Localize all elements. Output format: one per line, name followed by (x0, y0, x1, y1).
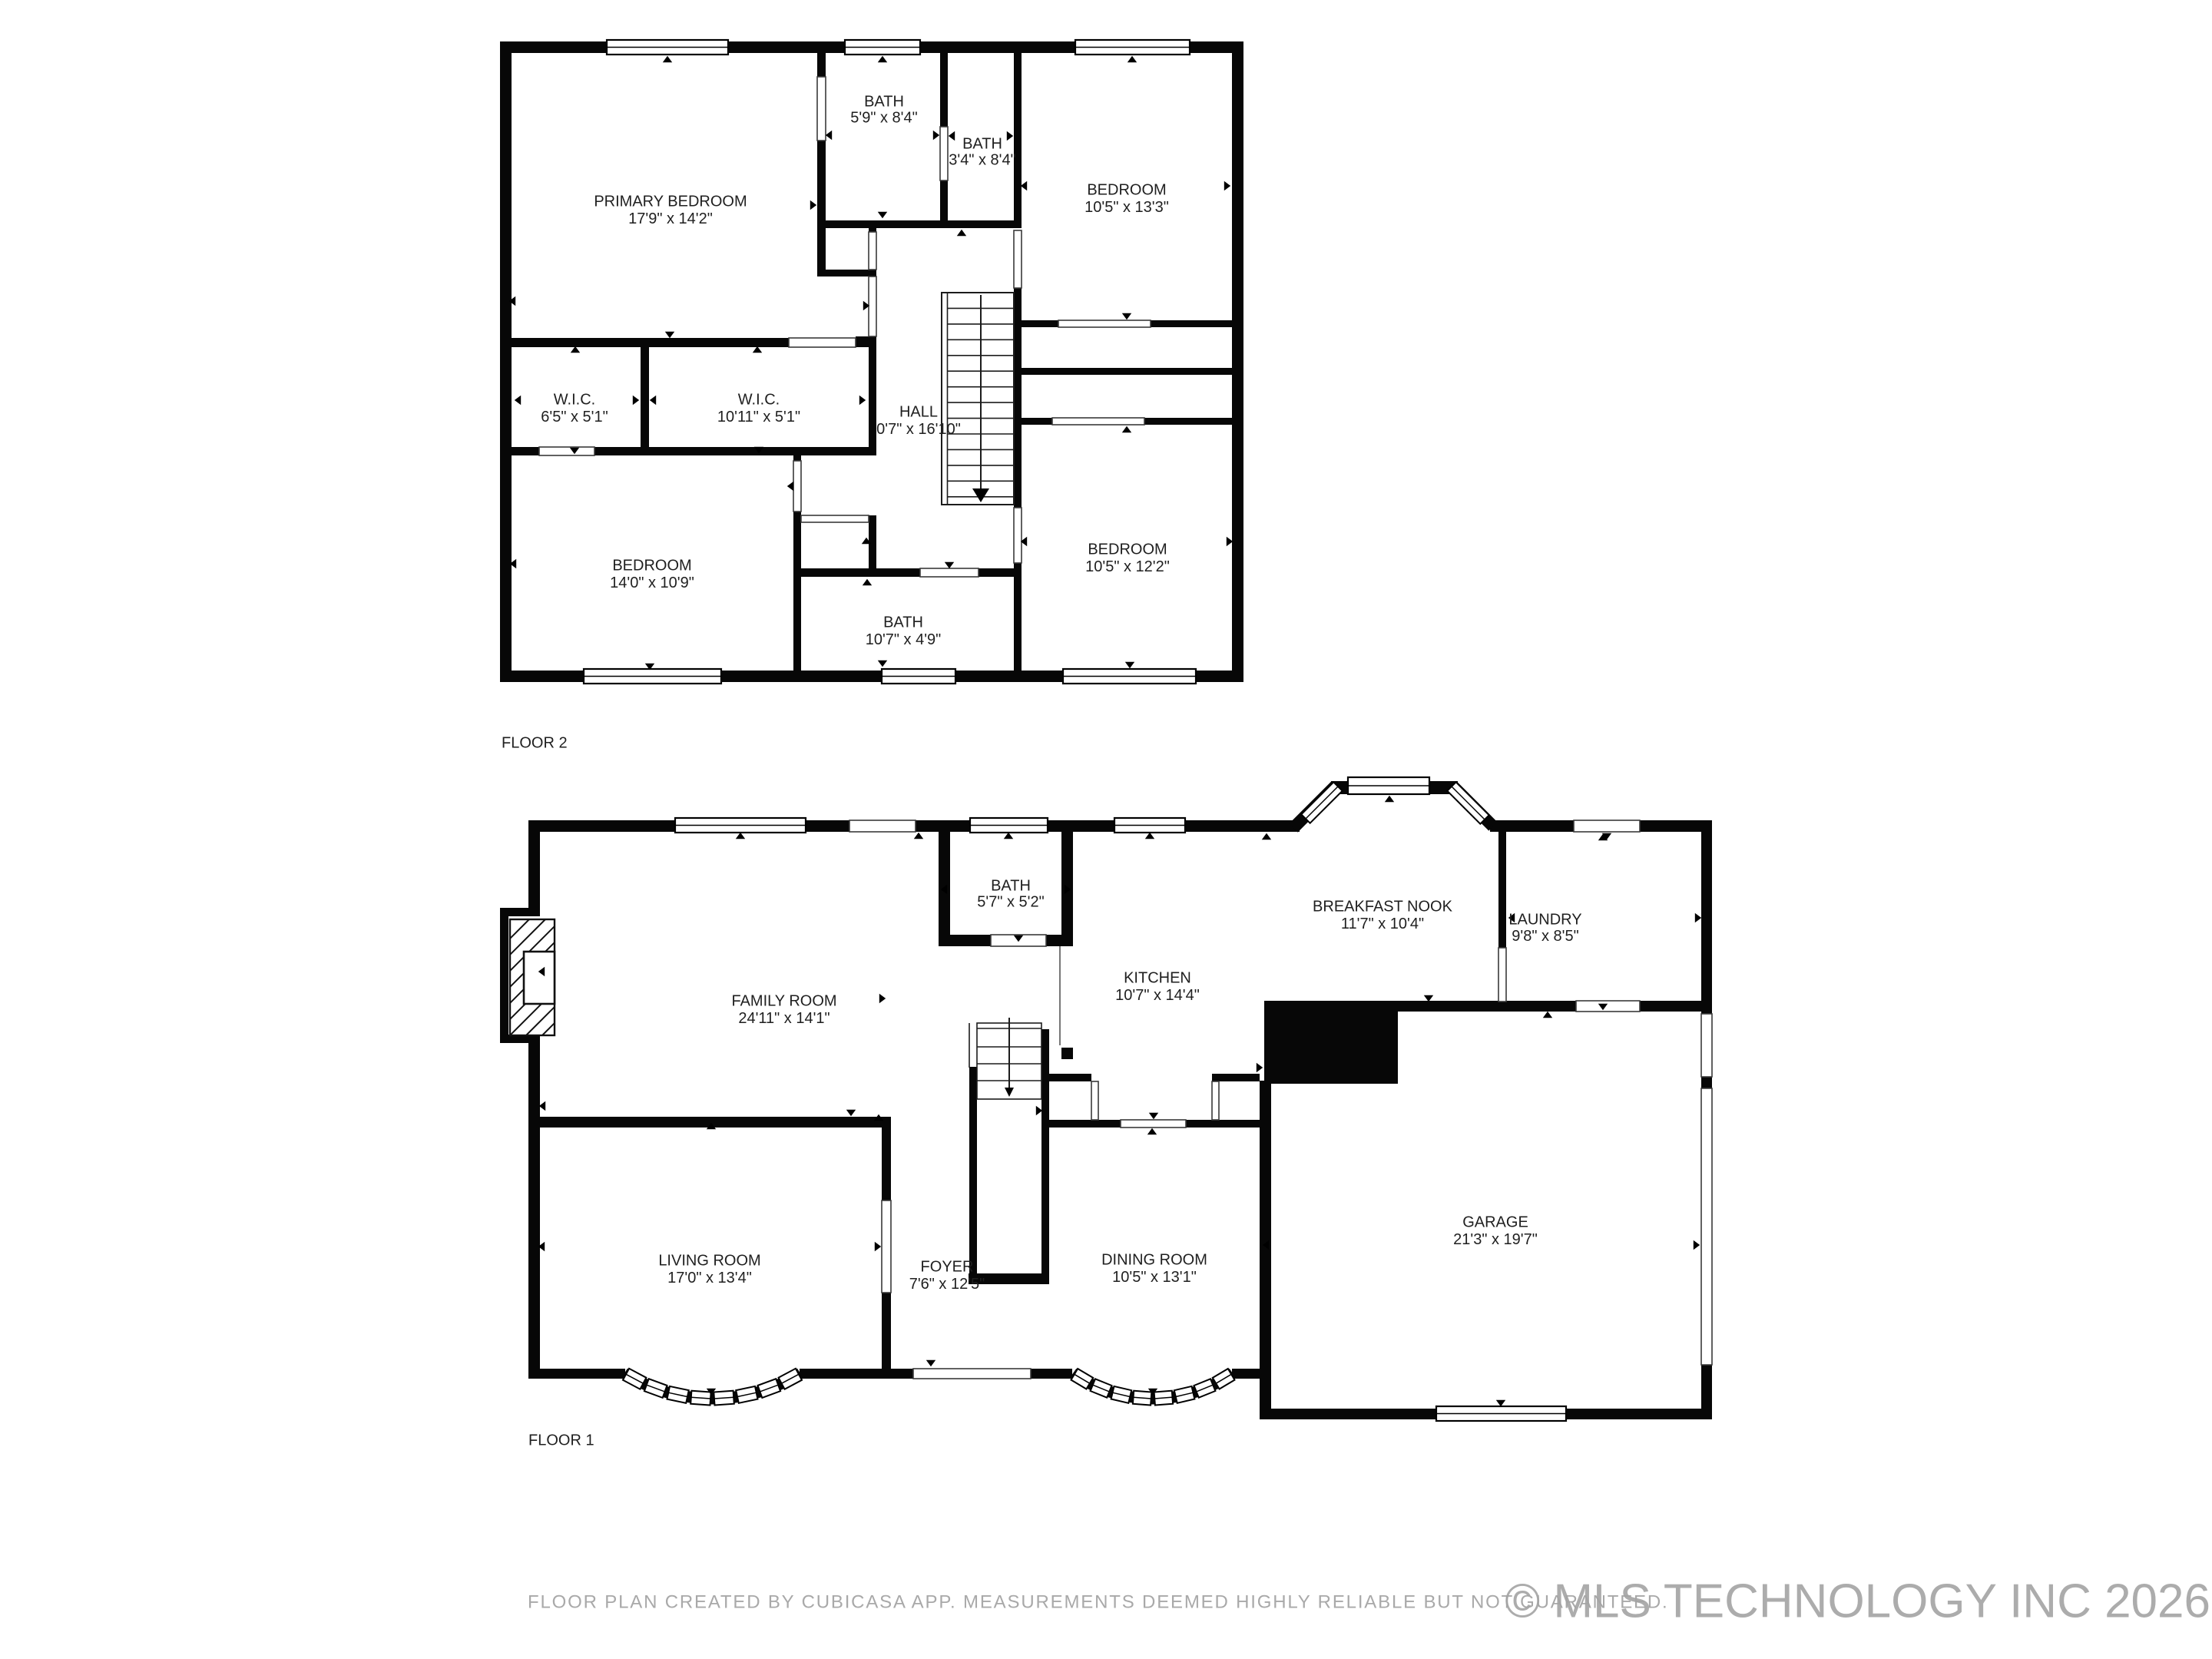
svg-text:BEDROOM: BEDROOM (1088, 541, 1167, 558)
svg-text:10'7" x 14'4": 10'7" x 14'4" (1115, 987, 1200, 1004)
svg-text:3'4" x 8'4": 3'4" x 8'4" (949, 151, 1015, 168)
svg-text:DINING ROOM: DINING ROOM (1101, 1251, 1207, 1268)
svg-text:10'11" x 5'1": 10'11" x 5'1" (717, 409, 800, 426)
svg-text:KITCHEN: KITCHEN (1124, 969, 1191, 986)
svg-text:21'3" x 19'7": 21'3" x 19'7" (1453, 1231, 1538, 1248)
svg-text:BATH: BATH (991, 877, 1031, 894)
svg-text:BREAKFAST NOOK: BREAKFAST NOOK (1313, 898, 1453, 915)
svg-text:PRIMARY BEDROOM: PRIMARY BEDROOM (594, 193, 747, 210)
svg-text:5'7" x 5'2": 5'7" x 5'2" (977, 893, 1044, 910)
svg-text:W.I.C.: W.I.C. (554, 391, 595, 408)
svg-text:10'7" x 4'9": 10'7" x 4'9" (866, 631, 942, 648)
svg-text:BATH: BATH (883, 614, 923, 631)
svg-text:7'6" x 12'5": 7'6" x 12'5" (909, 1276, 985, 1293)
svg-text:10'5" x 12'2": 10'5" x 12'2" (1085, 558, 1170, 575)
svg-text:W.I.C.: W.I.C. (738, 391, 780, 408)
svg-text:0'7" x 16'10": 0'7" x 16'10" (876, 421, 961, 438)
svg-text:5'9" x 8'4": 5'9" x 8'4" (850, 109, 917, 126)
svg-text:LIVING ROOM: LIVING ROOM (658, 1252, 760, 1269)
svg-text:17'9" x 14'2": 17'9" x 14'2" (628, 210, 713, 227)
svg-text:10'5" x 13'3": 10'5" x 13'3" (1084, 199, 1169, 216)
svg-text:GARAGE: GARAGE (1462, 1214, 1528, 1230)
svg-text:LAUNDRY: LAUNDRY (1508, 911, 1581, 928)
svg-text:6'5" x 5'1": 6'5" x 5'1" (541, 409, 608, 426)
svg-text:17'0" x 13'4": 17'0" x 13'4" (667, 1270, 752, 1286)
svg-text:FOYER: FOYER (921, 1258, 974, 1275)
svg-text:BEDROOM: BEDROOM (1087, 181, 1166, 198)
svg-text:9'8" x 8'5": 9'8" x 8'5" (1512, 928, 1578, 945)
svg-text:10'5" x 13'1": 10'5" x 13'1" (1112, 1269, 1197, 1286)
svg-text:11'7" x 10'4": 11'7" x 10'4" (1341, 916, 1424, 932)
svg-text:FLOOR 2: FLOOR 2 (502, 734, 568, 751)
svg-text:© MLS TECHNOLOGY INC 2026: © MLS TECHNOLOGY INC 2026 (1505, 1575, 2210, 1628)
svg-text:14'0" x 10'9": 14'0" x 10'9" (610, 575, 694, 591)
svg-text:BEDROOM: BEDROOM (612, 557, 691, 574)
svg-text:FLOOR PLAN CREATED BY CUBICASA: FLOOR PLAN CREATED BY CUBICASA APP. MEAS… (528, 1591, 1669, 1612)
svg-text:BATH: BATH (962, 135, 1002, 152)
svg-text:FLOOR 1: FLOOR 1 (528, 1432, 594, 1449)
svg-text:24'11" x 14'1": 24'11" x 14'1" (738, 1010, 829, 1027)
svg-text:FAMILY ROOM: FAMILY ROOM (731, 992, 836, 1009)
svg-text:HALL: HALL (899, 403, 938, 420)
svg-text:BATH: BATH (864, 93, 904, 110)
